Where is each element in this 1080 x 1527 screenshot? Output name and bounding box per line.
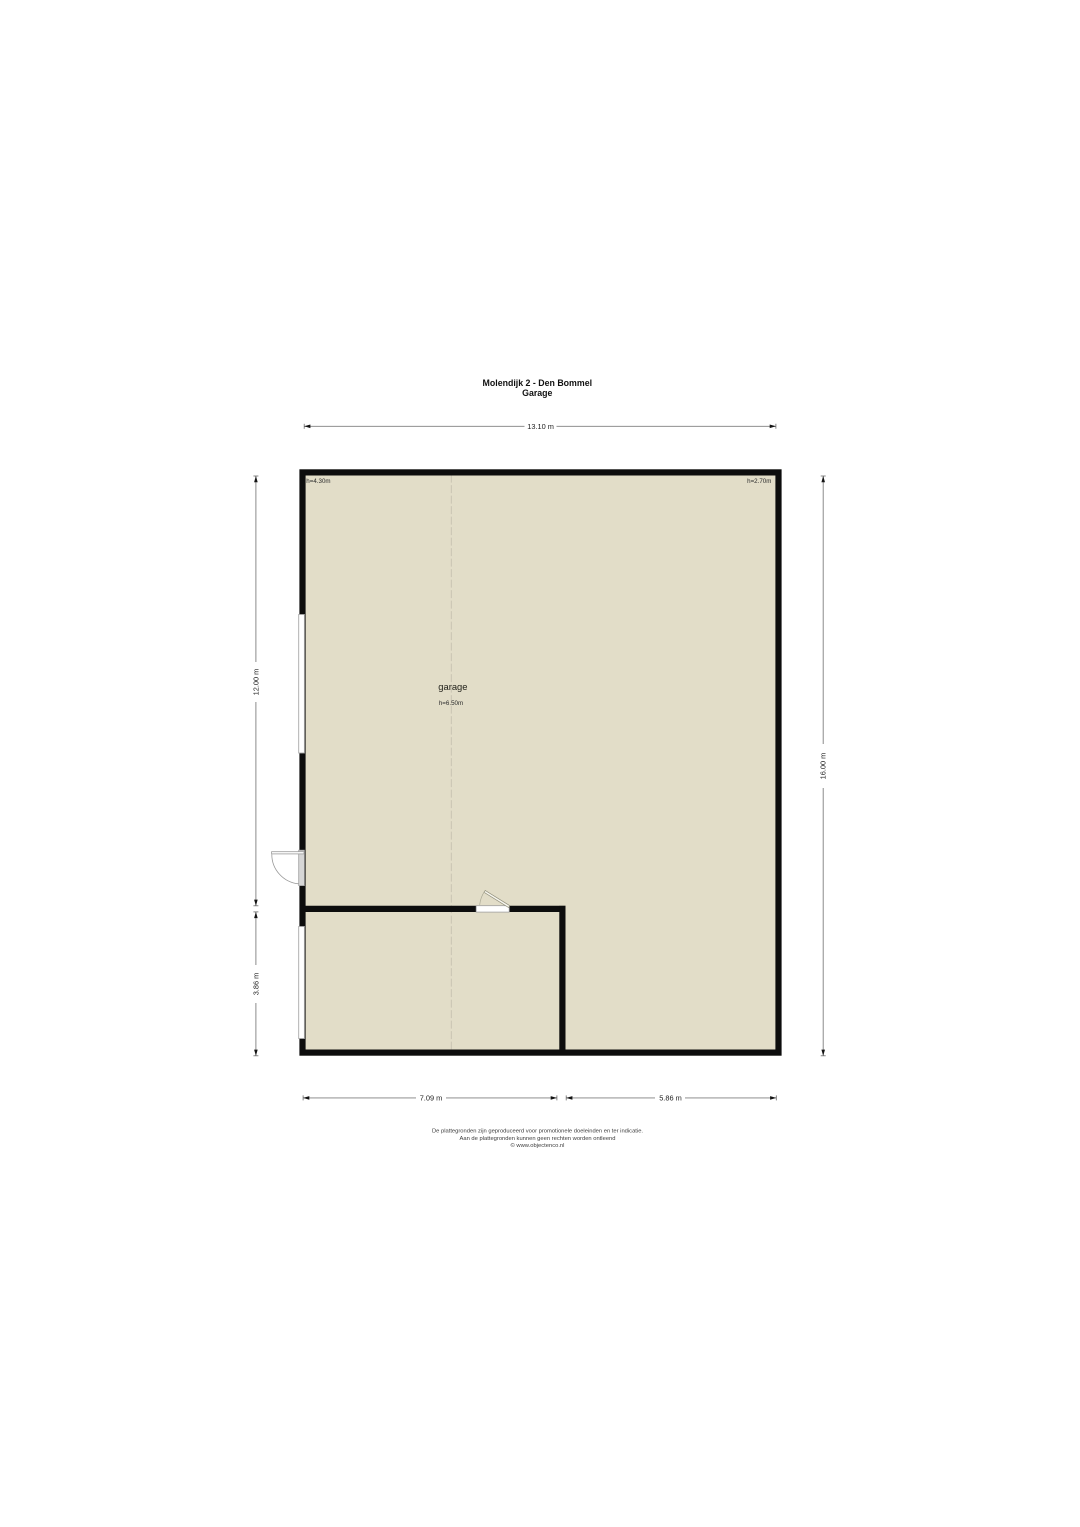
svg-text:Molendijk 2 - Den Bommel: Molendijk 2 - Den Bommel [483,378,593,388]
svg-text:5.86 m: 5.86 m [659,1093,682,1102]
svg-text:h=4.30m: h=4.30m [306,478,330,485]
svg-text:12.00 m: 12.00 m [251,669,260,696]
svg-text:De plattegronden zijn geproduc: De plattegronden zijn geproduceerd voor … [432,1129,643,1135]
svg-text:Aan de plattegronden kunnen ge: Aan de plattegronden kunnen geen rechten… [460,1136,616,1142]
svg-text:Garage: Garage [522,388,552,398]
svg-text:h=2.70m: h=2.70m [747,478,771,485]
svg-text:garage: garage [438,681,467,692]
svg-text:7.09 m: 7.09 m [420,1093,443,1102]
svg-text:16.00 m: 16.00 m [819,753,828,780]
svg-text:3.86 m: 3.86 m [251,973,260,996]
svg-text:© www.objectenco.nl: © www.objectenco.nl [511,1142,565,1149]
svg-text:h=6.50m: h=6.50m [439,700,463,707]
svg-text:13.10 m: 13.10 m [527,422,554,431]
